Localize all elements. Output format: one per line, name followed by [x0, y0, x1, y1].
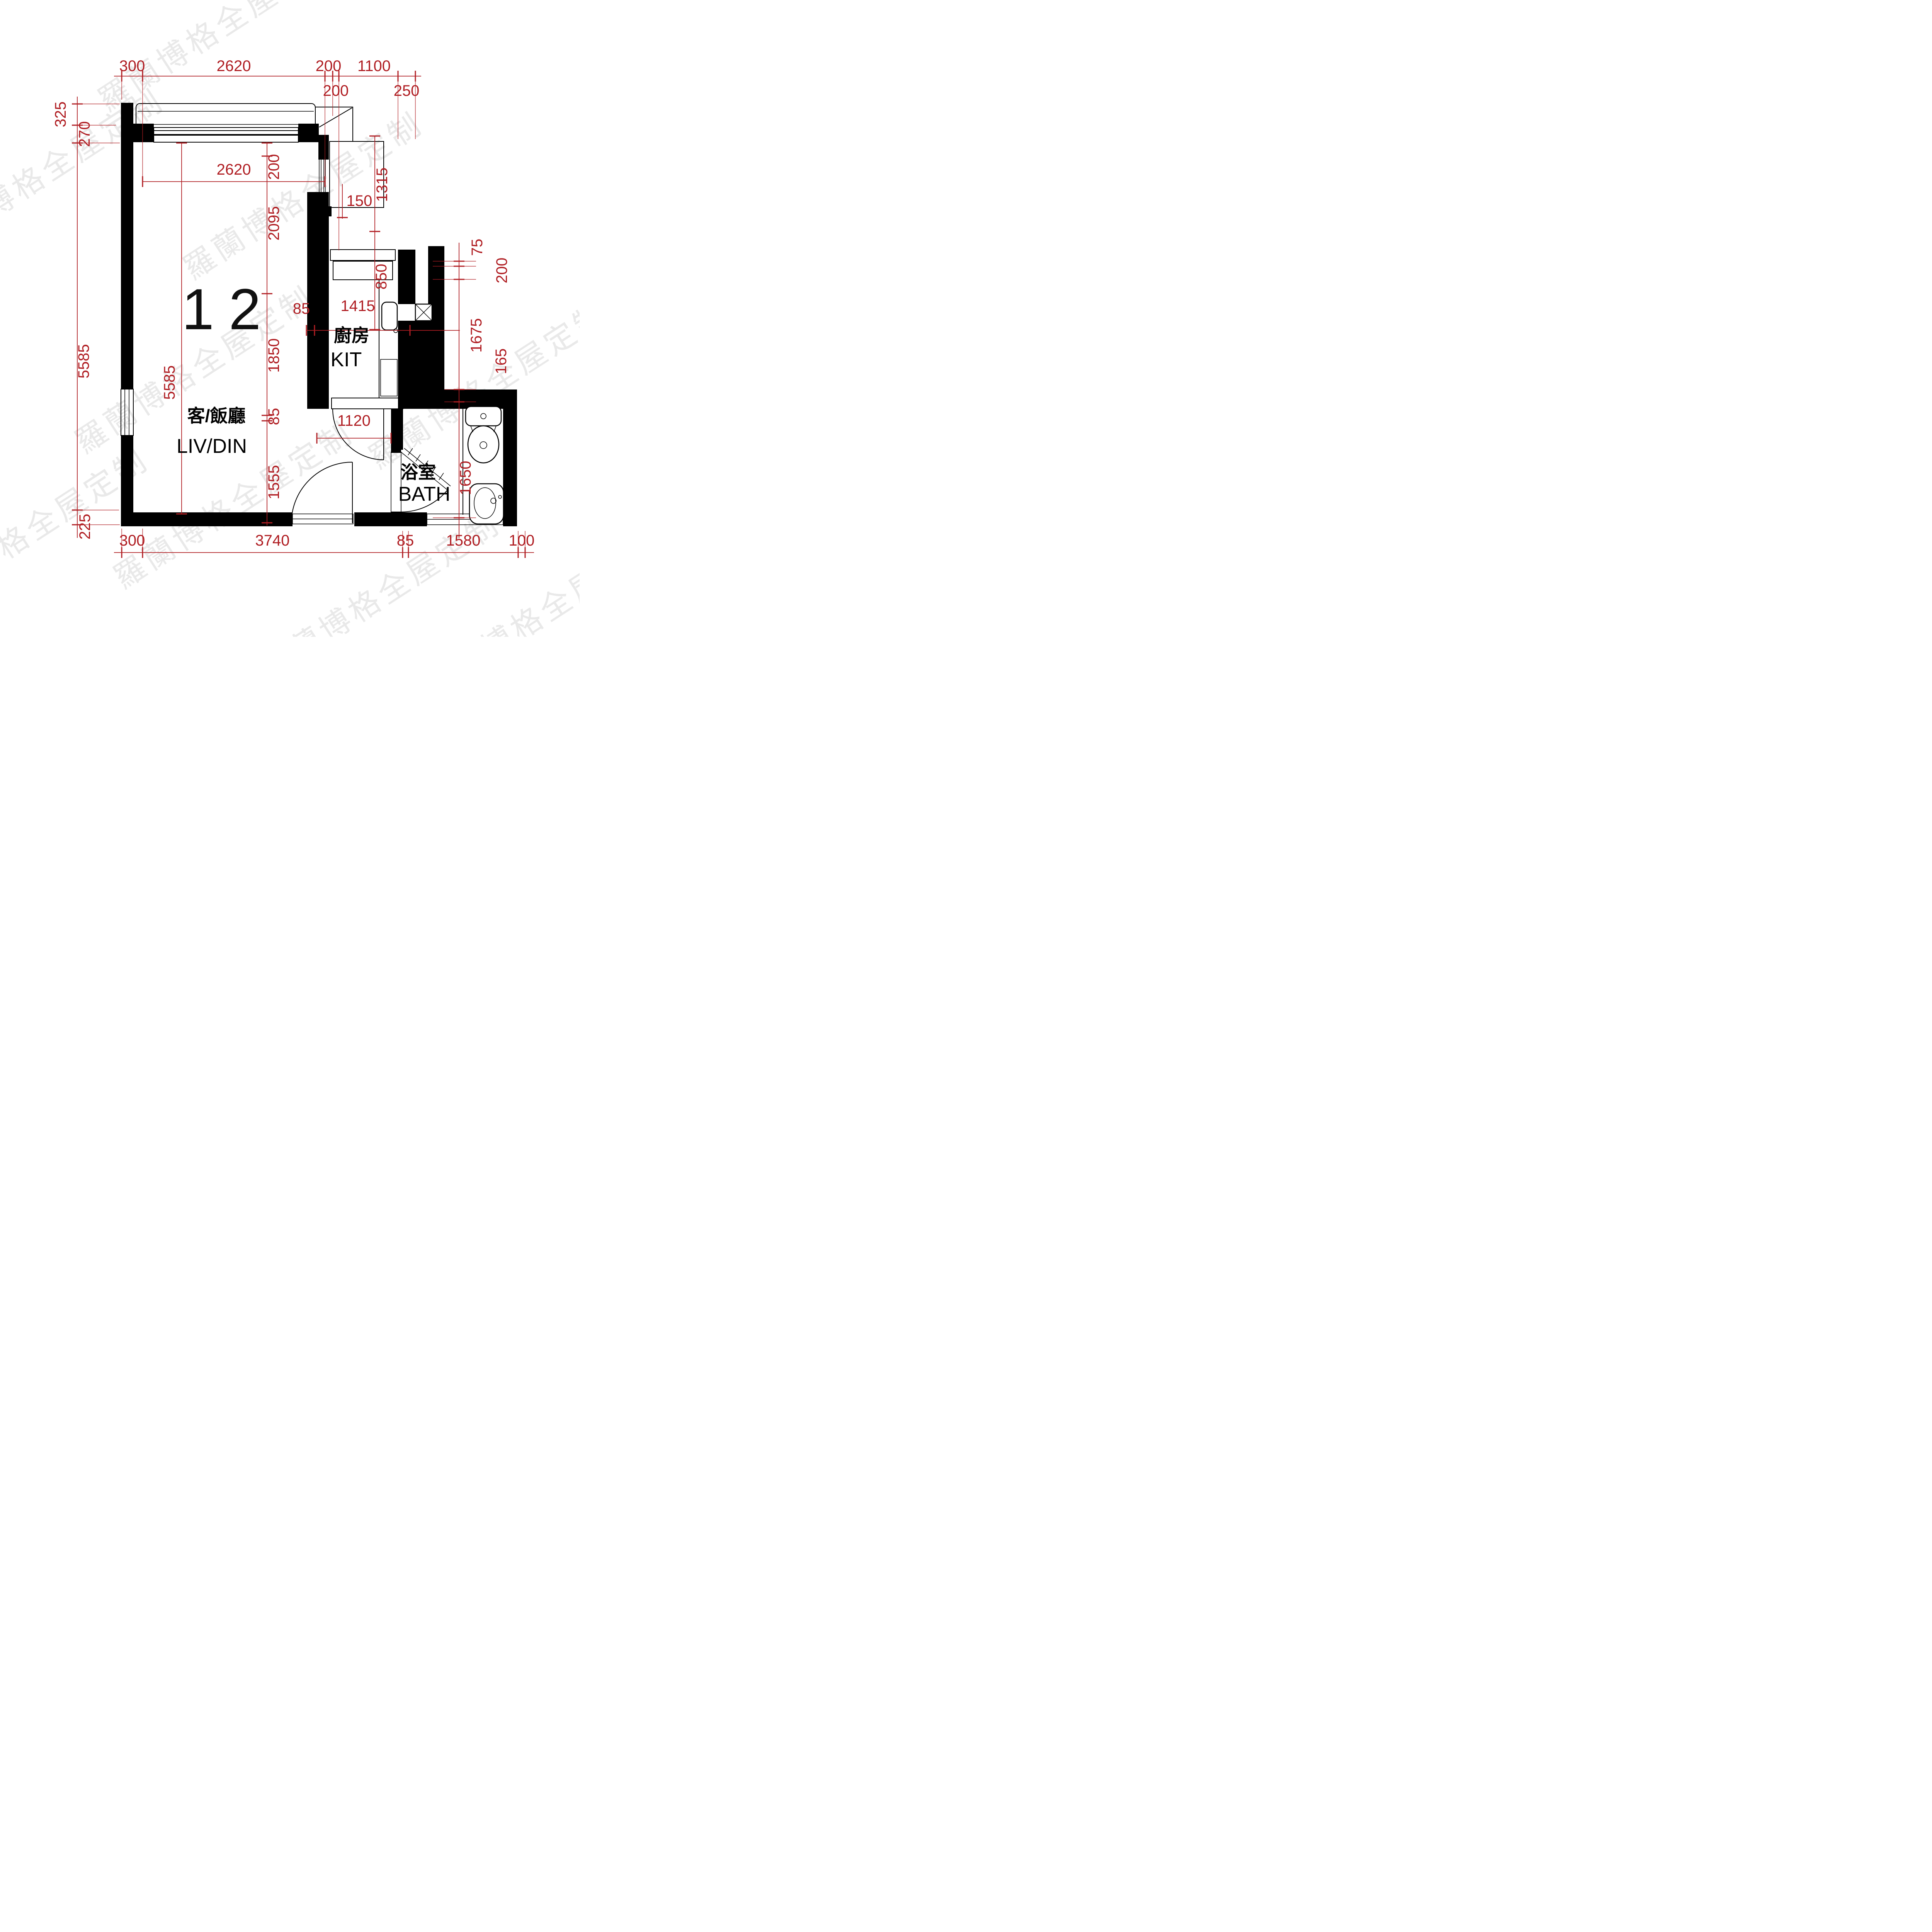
living-label-zh: 客/飯廳: [187, 406, 246, 426]
toilet-tank: [466, 406, 501, 426]
dim-label: 1850: [265, 338, 282, 373]
kitchen-bottom-wall: [332, 398, 403, 409]
partition-notch-top: [391, 450, 401, 453]
dim-recess: 150: [337, 184, 372, 219]
dim-label: 1650: [457, 461, 474, 495]
wall-living-kitchen: [307, 192, 329, 409]
bath-door-hatch: [416, 454, 420, 461]
dim-label: 2620: [217, 58, 251, 75]
wall-kitchen-right: [398, 250, 415, 304]
dim-label: 200: [323, 82, 349, 99]
wall-left-upper: [121, 103, 133, 389]
dim-label: 250: [394, 82, 420, 99]
dim-label: 300: [119, 532, 145, 549]
dim-label: 165: [493, 349, 510, 374]
dim-label: 150: [347, 192, 372, 209]
dim-label: 2620: [217, 161, 251, 178]
wall-below-shaft: [398, 321, 444, 389]
dim-label: 5585: [75, 344, 92, 379]
wall-bath-left: [391, 409, 403, 450]
wall-right-outer: [503, 389, 517, 526]
duct-shaft: [415, 304, 432, 321]
floor-plan-drawing: 羅蘭博格全屋定制 羅蘭博格全屋定制 羅蘭博格全屋定制 羅蘭博格全屋定制 羅蘭博格…: [0, 0, 580, 637]
living-label-en: LIV/DIN: [177, 435, 247, 457]
dim-label: 1415: [341, 298, 375, 315]
dim-label: 200: [316, 58, 342, 75]
bay-window-pier-right: [298, 124, 319, 142]
bath-label-zh: 浴室: [400, 462, 436, 482]
floor-plan-page: 羅蘭博格全屋定制 羅蘭博格全屋定制 羅蘭博格全屋定制 羅蘭博格全屋定制 羅蘭博格…: [0, 0, 580, 637]
kitchen-label-en: KIT: [331, 349, 362, 371]
dim-label: 85: [397, 532, 414, 549]
living-window-band-inner: [154, 135, 298, 142]
dim-label: 1555: [265, 465, 282, 500]
kitchen-window-outer: [330, 250, 395, 260]
dim-label: 200: [265, 154, 282, 180]
dim-label: 5585: [161, 366, 178, 400]
unit-number: 12: [182, 277, 276, 342]
wall-neighbor: [428, 246, 444, 304]
wall-bottom-mid: [354, 512, 427, 526]
platform-diagonal: [319, 108, 352, 127]
bath-label-en: BATH: [398, 483, 451, 505]
dim-label: 1580: [446, 532, 481, 549]
dim-label: 3740: [255, 532, 290, 549]
dim-label: 85: [265, 408, 282, 425]
watermark-text: 羅蘭博格全屋定制: [0, 83, 170, 263]
toilet: [466, 406, 501, 463]
wall-beside-shaft: [432, 304, 444, 321]
toilet-join: [471, 426, 473, 432]
dim-label: 200: [493, 258, 510, 284]
dim-label: 270: [76, 121, 93, 147]
dim-label: 1675: [468, 318, 485, 353]
dim-label: 850: [373, 264, 390, 290]
kitchen-sink: [382, 302, 397, 330]
dim-label: 85: [293, 300, 310, 317]
kitchen-label-zh: 廚房: [334, 325, 369, 345]
dim-label: 225: [77, 514, 94, 540]
dim-label: 1315: [374, 168, 391, 202]
wall-bath-top: [398, 389, 503, 409]
dim-label: 325: [52, 102, 69, 128]
watermark-layer: 羅蘭博格全屋定制 羅蘭博格全屋定制 羅蘭博格全屋定制 羅蘭博格全屋定制 羅蘭博格…: [0, 0, 580, 637]
dim-label: 75: [469, 239, 486, 256]
dim-label: 1100: [357, 58, 391, 75]
kitchen-appliance: [381, 359, 397, 396]
dim-label: 100: [509, 532, 535, 549]
toilet-join: [494, 426, 496, 432]
dim-label: 1120: [337, 412, 371, 429]
dim-label: 2095: [265, 206, 282, 241]
wall-top-right-pier: [318, 135, 329, 160]
dim-label: 300: [119, 58, 145, 75]
